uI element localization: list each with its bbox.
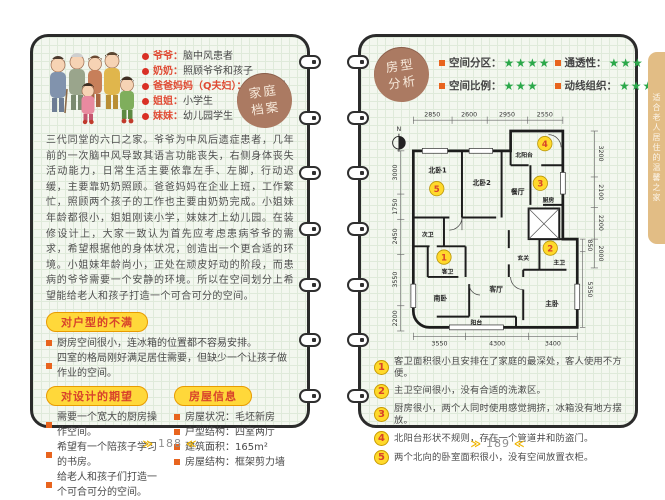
svg-text:主卫: 主卫 [553, 258, 565, 266]
family-desc: 脑中风患者 [183, 49, 233, 64]
svg-text:阳台: 阳台 [471, 319, 483, 327]
expectations-list: 需要一个宽大的厨房操作空间。 希望有一个陪孩子学习的书房。 给老人和孩子们打造一… [46, 410, 166, 500]
page-number: 188 [158, 437, 182, 450]
svg-text:2: 2 [547, 244, 553, 254]
svg-text:餐厅: 餐厅 [510, 187, 525, 196]
expectation-text: 给老人和孩子们打造一个可合可分的空间。 [57, 470, 166, 500]
plan-badge: 2 [543, 241, 557, 255]
badge-line: 档案 [250, 98, 281, 118]
ring-clip-icon [299, 389, 321, 403]
analysis-number: 5 [374, 450, 389, 465]
ring-clip-icon [347, 55, 369, 69]
plan-badge: 5 [430, 181, 444, 195]
square-bullet-icon [174, 429, 180, 435]
svg-text:2850: 2850 [424, 112, 440, 119]
footer-arrow-icon: ≫ [143, 439, 154, 450]
rating-label: 动线组织： [565, 78, 618, 93]
svg-text:3: 3 [537, 179, 543, 189]
svg-text:3550: 3550 [392, 272, 399, 288]
square-bullet-icon [439, 60, 445, 66]
svg-text:3000: 3000 [392, 164, 399, 180]
rating-stars: ★★★ [504, 79, 539, 93]
red-dot-bullet-icon [142, 68, 149, 75]
ring-clip-icon [299, 278, 321, 292]
family-member-row: 爷爷：脑中风患者 [142, 49, 287, 64]
complaint-item: 厨房空间很小，连冰箱的位置都不容易安排。 [46, 336, 294, 351]
footer-arrow-icon: ≫ [471, 439, 482, 450]
complaints-list: 厨房空间很小，连冰箱的位置都不容易安排。 四室的格局刚好满足居住需要，但缺少一个… [46, 336, 294, 381]
svg-text:1750: 1750 [392, 199, 399, 215]
ring-clip-icon [347, 166, 369, 180]
family-desc: 幼儿园学生 [183, 109, 233, 124]
section-house-info-title: 房屋信息 [174, 386, 252, 406]
svg-text:1: 1 [441, 253, 447, 263]
ring-clip-icon [347, 389, 369, 403]
elevator-shaft-icon [529, 208, 560, 239]
analysis-item: 1客卫面积很小且安排在了家庭的最深处，客人使用不方便。 [374, 356, 622, 379]
expectation-text: 需要一个宽大的厨房操作空间。 [57, 410, 166, 440]
ring-clip-icon [347, 333, 369, 347]
family-role: 爷爷： [153, 49, 183, 64]
intro-paragraph: 三代同堂的六口之家。爷爷为中风后遗症患者，几年前的一次脑中风导致其语言功能丧失，… [46, 133, 294, 305]
binder-rings-left [299, 55, 321, 403]
svg-text:850: 850 [586, 239, 593, 251]
rating-item: 空间分区：★★★★ [439, 55, 551, 70]
dimension-lines: 2850 2600 2950 2550 3000 1750 2450 3550 … [392, 112, 604, 348]
badge-line: 分析 [387, 72, 418, 92]
svg-text:2200: 2200 [392, 310, 399, 326]
svg-text:厨房: 厨房 [543, 196, 555, 204]
rating-label: 空间比例： [449, 78, 502, 93]
svg-text:2950: 2950 [499, 112, 515, 119]
svg-text:主卧: 主卧 [545, 299, 559, 308]
analysis-number: 2 [374, 384, 389, 399]
section-complaints-title: 对户型的不满 [46, 312, 148, 332]
north-arrow-icon: N [393, 126, 406, 152]
rating-stars: ★★★ [609, 56, 644, 70]
analysis-text: 主卫空间很小，没有合适的洗漱区。 [394, 385, 546, 397]
red-dot-bullet-icon [142, 83, 149, 90]
red-dot-bullet-icon [142, 113, 149, 120]
house-info-label: 房屋结构： [185, 455, 235, 470]
page-left: 爷爷：脑中风患者 奶奶：照顾爷爷和孩子 爸爸妈妈（Q夫妇）：企业职员 姐姐：小学… [30, 34, 310, 428]
plan-badge: 4 [538, 136, 552, 150]
plan-analysis-badge: 房型 分析 [370, 43, 432, 105]
ring-clip-icon [347, 222, 369, 236]
page-number: 189 [486, 437, 510, 450]
ring-clip-icon [299, 222, 321, 236]
rating-label: 通透性： [565, 55, 607, 70]
rating-label: 空间分区： [449, 55, 502, 70]
page-number-right: ≫189≪ [358, 437, 638, 450]
section-expectations-title: 对设计的期望 [46, 386, 148, 406]
square-bullet-icon [46, 340, 52, 346]
ratings-grid: 空间分区：★★★★ 空间比例：★★★ 通透性：★★★ 动线组织：★★★★ [439, 55, 665, 93]
ring-clip-icon [299, 55, 321, 69]
footer-arrow-icon: ≪ [186, 439, 197, 450]
plan-number-badges: 1 2 3 4 5 [430, 136, 558, 264]
svg-text:玄关: 玄关 [517, 254, 529, 262]
analysis-text: 两个北向的卧室面积很小，没有空间放置衣柜。 [394, 452, 593, 464]
complaint-text: 四室的格局刚好满足居住需要，但缺少一个让孩子做作业的空间。 [57, 351, 294, 381]
family-role: 姐姐： [153, 94, 183, 109]
family-header: 爷爷：脑中风患者 奶奶：照顾爷爷和孩子 爸爸妈妈（Q夫妇）：企业职员 姐姐：小学… [46, 47, 294, 127]
ring-clip-icon [299, 166, 321, 180]
svg-text:2200: 2200 [597, 215, 604, 231]
svg-text:5: 5 [434, 185, 440, 195]
page-number-left: ≫188≪ [30, 437, 310, 450]
rating-stars: ★★★★ [504, 56, 551, 70]
svg-text:3400: 3400 [545, 340, 561, 347]
svg-text:3200: 3200 [597, 146, 604, 162]
analysis-number: 3 [374, 407, 389, 422]
house-info-item: 房屋状况：毛坯新房 [174, 410, 294, 425]
chapter-side-tab-text: 适合老人居住的温馨之家 [651, 93, 662, 203]
svg-text:次卫: 次卫 [422, 230, 434, 238]
square-bullet-icon [174, 459, 180, 465]
square-bullet-icon [439, 83, 445, 89]
square-bullet-icon [555, 83, 561, 89]
expectation-item: 给老人和孩子们打造一个可合可分的空间。 [46, 470, 166, 500]
expectation-item: 需要一个宽大的厨房操作空间。 [46, 410, 166, 440]
svg-text:北卧1: 北卧1 [429, 165, 448, 174]
ring-clip-icon [299, 333, 321, 347]
red-dot-bullet-icon [142, 98, 149, 105]
family-role: 奶奶： [153, 64, 183, 79]
floor-plan: N 2850 2600 2950 2550 3000 1750 2450 355… [386, 104, 610, 349]
analysis-number: 1 [374, 360, 389, 375]
square-bullet-icon [46, 482, 52, 488]
family-illustration [46, 47, 136, 125]
analysis-item: 2主卫空间很小，没有合适的洗漱区。 [374, 384, 622, 399]
svg-text:4: 4 [542, 140, 548, 150]
family-desc: 小学生 [183, 94, 213, 109]
chapter-side-tab: 适合老人居住的温馨之家 [648, 52, 665, 244]
svg-text:3550: 3550 [431, 340, 447, 347]
svg-text:2600: 2600 [461, 112, 477, 119]
family-role: 妹妹： [153, 109, 183, 124]
analysis-item: 5两个北向的卧室面积很小，没有空间放置衣柜。 [374, 450, 622, 465]
footer-arrow-icon: ≪ [514, 439, 525, 450]
analysis-item: 3厨房很小，两个人同时使用感觉拥挤，冰箱没有地方摆放。 [374, 403, 622, 426]
ring-clip-icon [347, 111, 369, 125]
analysis-text: 客卫面积很小且安排在了家庭的最深处，客人使用不方便。 [394, 356, 622, 379]
svg-text:南卧: 南卧 [434, 293, 448, 302]
analysis-text: 厨房很小，两个人同时使用感觉拥挤，冰箱没有地方摆放。 [394, 403, 622, 426]
svg-text:4300: 4300 [489, 340, 505, 347]
plan-badge: 1 [437, 250, 451, 264]
page-right: 房型 分析 空间分区：★★★★ 空间比例：★★★ 通透性：★★★ 动线组织：★★… [358, 34, 638, 428]
house-info-value: 毛坯新房 [235, 410, 275, 425]
svg-text:北卧2: 北卧2 [473, 178, 492, 187]
square-bullet-icon [46, 422, 52, 428]
square-bullet-icon [174, 414, 180, 420]
svg-text:N: N [397, 126, 402, 133]
complaint-item: 四室的格局刚好满足居住需要，但缺少一个让孩子做作业的空间。 [46, 351, 294, 381]
complaint-text: 厨房空间很小，连冰箱的位置都不容易安排。 [57, 336, 257, 351]
square-bullet-icon [555, 60, 561, 66]
svg-text:客卫: 客卫 [441, 267, 454, 275]
ring-clip-icon [299, 111, 321, 125]
red-dot-bullet-icon [142, 53, 149, 60]
family-role: 爸爸妈妈（Q夫妇）： [153, 79, 247, 94]
house-info-value: 框架剪力墙 [235, 455, 285, 470]
binder-rings-right [347, 55, 369, 403]
svg-text:2450: 2450 [392, 228, 399, 244]
svg-text:2550: 2550 [537, 112, 553, 119]
svg-text:客厅: 客厅 [488, 284, 503, 293]
svg-text:北阳台: 北阳台 [515, 151, 533, 159]
house-info-label: 房屋状况： [185, 410, 235, 425]
rating-item: 空间比例：★★★ [439, 78, 551, 93]
plan-badge: 3 [533, 176, 547, 190]
square-bullet-icon [46, 363, 52, 369]
svg-text:2000: 2000 [597, 246, 604, 262]
svg-text:5350: 5350 [586, 282, 593, 298]
square-bullet-icon [46, 452, 52, 458]
family-desc: 照顾爷爷和孩子 [183, 64, 253, 79]
house-info-item: 房屋结构：框架剪力墙 [174, 455, 294, 470]
ring-clip-icon [347, 278, 369, 292]
svg-text:2100: 2100 [597, 184, 604, 200]
